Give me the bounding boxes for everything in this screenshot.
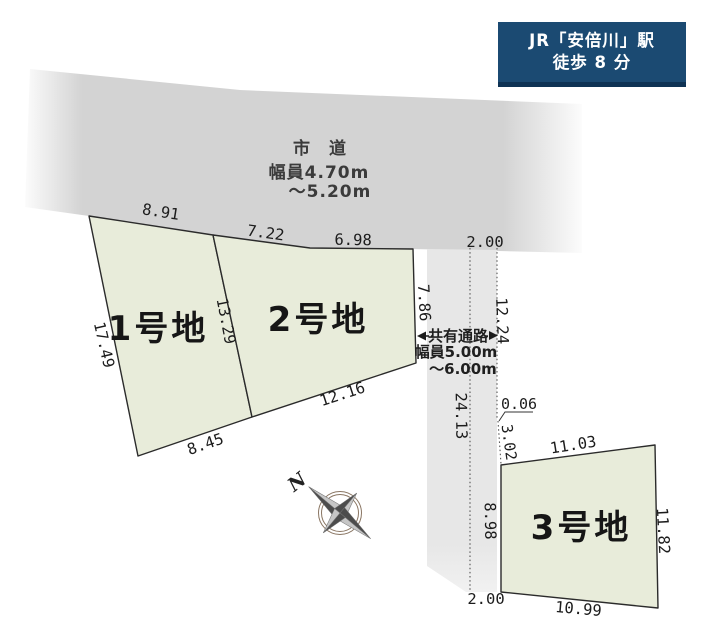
passage-width-line2: ～6.00m [429, 360, 497, 378]
passage-arrow-left-icon [417, 332, 426, 341]
plot-2-label: 2号地 [268, 300, 369, 340]
dim-plot3-right: 11.82 [653, 507, 673, 555]
dim-plot3-bottom: 10.99 [554, 598, 602, 620]
dim-plot3-left: 8.98 [481, 502, 500, 540]
offset-leader-line [499, 412, 533, 421]
station-badge-line2: 徒歩 8 分 [553, 54, 631, 73]
compass-north-label: N [283, 468, 312, 497]
compass-rose: N [283, 467, 387, 559]
dim-offset: 0.06 [501, 395, 537, 413]
plan-drawing: 市 道 幅員4.70m ～5.20m 共有通路 幅員5.00m ～6.00m 1… [0, 0, 710, 638]
station-badge-line1: JR「安倍川」駅 [529, 32, 655, 51]
passage-width-line1: 幅員5.00m [415, 343, 498, 361]
station-access-badge: JR「安倍川」駅 徒歩 8 分 [498, 22, 686, 87]
dim-passage-right-upper: 12.24 [492, 297, 512, 344]
dim-plot2-right: 7.86 [414, 284, 434, 322]
plot-1-label: 1号地 [108, 309, 209, 349]
dim-passage-right-lower: 3.02 [498, 423, 521, 461]
road-width-line1: 幅員4.70m [269, 162, 370, 183]
dim-passage-bottom-width: 2.00 [467, 590, 504, 608]
road-width-line2: ～5.20m [289, 182, 372, 202]
road-name: 市 道 [293, 138, 347, 159]
dim-passage-left-length: 24.13 [452, 392, 471, 439]
dim-plot2-top-right: 6.98 [334, 231, 372, 250]
dim-passage-top-width: 2.00 [466, 233, 503, 251]
site-plan: 市 道 幅員4.70m ～5.20m 共有通路 幅員5.00m ～6.00m 1… [0, 0, 710, 638]
plot-3-label: 3号地 [531, 508, 632, 548]
